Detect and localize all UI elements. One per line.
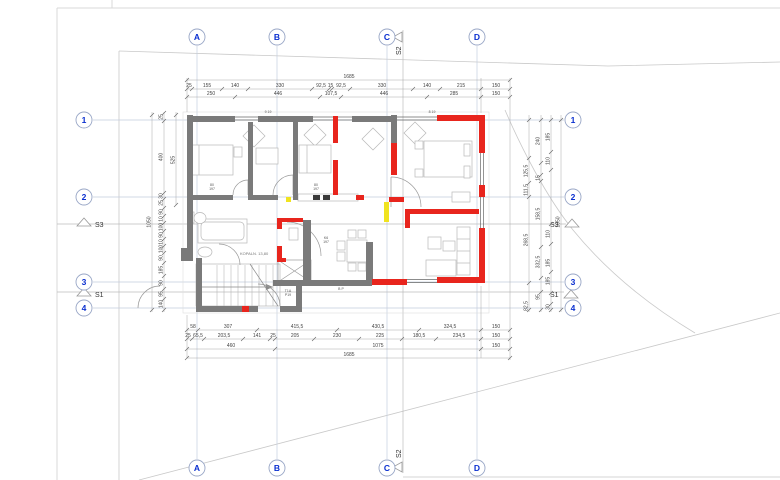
svg-text:240: 240: [536, 137, 542, 146]
svg-text:D: D: [474, 463, 480, 473]
svg-text:3: 3: [82, 277, 87, 287]
door-gate: [138, 286, 160, 308]
door-master: [391, 177, 421, 207]
axis-bubble-B-top: B: [269, 29, 285, 45]
svg-text:332,5: 332,5: [536, 256, 542, 269]
svg-text:25: 25: [159, 200, 165, 206]
svg-text:A: A: [194, 463, 200, 473]
svg-text:B P: B P: [338, 287, 344, 291]
svg-text:111,5: 111,5: [524, 184, 530, 196]
svg-text:4: 4: [82, 303, 87, 313]
svg-text:58: 58: [190, 324, 196, 330]
svg-text:415,5: 415,5: [291, 324, 304, 330]
floor-plan-page: S3 S3 S1 S1 S2 S2: [0, 0, 780, 480]
axis-bubble-B-bottom: B: [269, 460, 285, 476]
svg-text:155: 155: [203, 83, 212, 89]
svg-text:10: 10: [159, 216, 165, 222]
svg-text:15: 15: [536, 175, 542, 181]
section-s2-bottom-label: S2: [396, 449, 403, 458]
svg-text:446: 446: [380, 91, 389, 97]
svg-text:158,5: 158,5: [536, 208, 542, 221]
svg-text:250: 250: [207, 91, 216, 97]
svg-text:P19: P19: [285, 293, 291, 297]
svg-text:330: 330: [276, 83, 285, 89]
svg-text:2: 2: [82, 192, 87, 202]
nightstand: [415, 169, 423, 177]
sink: [323, 195, 330, 200]
svg-text:460: 460: [227, 343, 236, 349]
pillow-diamond: [362, 128, 384, 150]
section-s2-top-label: S2: [396, 46, 403, 55]
svg-text:185: 185: [159, 266, 165, 275]
svg-text:90: 90: [159, 280, 165, 286]
svg-text:4: 4: [571, 303, 576, 313]
svg-text:65,5: 65,5: [193, 333, 203, 339]
svg-text:2: 2: [571, 192, 576, 202]
dining-table: [347, 240, 367, 262]
axis-bubble-A-top: A: [189, 29, 205, 45]
svg-text:25: 25: [185, 333, 191, 339]
svg-text:1685: 1685: [343, 74, 354, 80]
svg-text:268,5: 268,5: [524, 234, 530, 247]
svg-text:25: 25: [270, 333, 276, 339]
svg-text:90: 90: [159, 255, 165, 261]
section-s3-left-label: S3: [95, 222, 104, 229]
section-s3-left-arrow: [77, 218, 91, 226]
svg-text:430,5: 430,5: [372, 324, 385, 330]
axis-bubble-A-bottom: A: [189, 460, 205, 476]
axis-bubble-2-left: 2: [76, 189, 92, 205]
axis-bubble-4-right: 4: [565, 300, 581, 316]
cooktop: [313, 195, 320, 200]
sofa: [426, 260, 456, 276]
frame-lines: [57, 0, 780, 480]
svg-text:150: 150: [492, 333, 501, 339]
svg-text:1075: 1075: [372, 343, 383, 349]
svg-text:324,5: 324,5: [444, 324, 457, 330]
chair: [348, 230, 356, 238]
doors: [138, 175, 421, 308]
svg-text:185: 185: [546, 259, 552, 268]
axis-bubble-1-right: 1: [565, 112, 581, 128]
svg-text:10: 10: [159, 239, 165, 245]
svg-text:A: A: [194, 32, 200, 42]
walls-existing: [181, 115, 397, 312]
pillow-diamond: [243, 125, 265, 147]
svg-text:D: D: [474, 32, 480, 42]
axis-bubble-1-left: 1: [76, 112, 92, 128]
wc-fixture: [289, 228, 298, 240]
svg-text:9 19: 9 19: [265, 110, 272, 114]
svg-text:30: 30: [159, 193, 165, 199]
svg-text:185: 185: [546, 277, 552, 286]
svg-text:100: 100: [159, 223, 165, 232]
svg-text:110: 110: [546, 230, 552, 238]
svg-text:1050: 1050: [147, 216, 153, 227]
svg-text:140: 140: [231, 83, 240, 89]
axis-bubble-3-right: 3: [565, 274, 581, 290]
svg-text:1: 1: [571, 115, 576, 125]
door-room2: [273, 175, 293, 195]
coffee-table: [443, 241, 455, 251]
svg-text:3: 3: [571, 277, 576, 287]
micro-labels: 9 198 198019780197K6197T1AP19B P: [209, 110, 435, 297]
nightstand: [415, 141, 423, 149]
room-label: KOPALN. 13,80: [240, 251, 269, 256]
svg-text:1050: 1050: [556, 216, 562, 227]
svg-text:203,5: 203,5: [218, 333, 231, 339]
section-s1-left-label: S1: [95, 292, 104, 299]
svg-text:150: 150: [492, 343, 501, 349]
svg-text:197: 197: [323, 240, 329, 244]
bed-room1: [191, 145, 233, 175]
svg-text:285: 285: [450, 91, 459, 97]
svg-text:25: 25: [159, 114, 165, 120]
section-s1-right-arrow: [564, 290, 578, 298]
svg-text:90: 90: [159, 209, 165, 215]
svg-text:25: 25: [186, 83, 192, 89]
svg-text:525: 525: [171, 156, 177, 165]
chair: [337, 252, 345, 261]
svg-text:230: 230: [333, 333, 342, 339]
svg-text:150: 150: [492, 91, 501, 97]
svg-text:234,5: 234,5: [453, 333, 466, 339]
axis-bubble-3-left: 3: [76, 274, 92, 290]
chair: [358, 263, 366, 271]
chair: [358, 230, 366, 238]
svg-text:150: 150: [492, 83, 501, 89]
svg-text:185: 185: [546, 133, 552, 142]
nightstand: [234, 147, 242, 157]
axis-bubble-C-bottom: C: [379, 460, 395, 476]
svg-text:1685: 1685: [343, 352, 354, 358]
svg-text:180,5: 180,5: [413, 333, 426, 339]
svg-text:92,5: 92,5: [336, 83, 346, 89]
svg-text:215: 215: [457, 83, 466, 89]
svg-text:95: 95: [159, 291, 165, 297]
svg-text:92,5: 92,5: [316, 83, 326, 89]
armchair: [428, 237, 441, 249]
svg-text:90: 90: [159, 232, 165, 238]
svg-text:95: 95: [536, 294, 542, 300]
desk-room2: [256, 148, 278, 164]
axis-bubble-4-left: 4: [76, 300, 92, 316]
chair: [337, 241, 345, 250]
svg-text:30: 30: [546, 304, 552, 310]
chair: [348, 263, 356, 271]
svg-text:B: B: [274, 32, 280, 42]
floor-plan-canvas: S3 S3 S1 S1 S2 S2: [0, 0, 780, 480]
svg-text:150: 150: [492, 324, 501, 330]
svg-text:140: 140: [423, 83, 432, 89]
washbasin: [198, 247, 212, 257]
svg-text:100: 100: [159, 245, 165, 254]
svg-text:C: C: [384, 32, 390, 42]
svg-text:1: 1: [82, 115, 87, 125]
svg-text:400: 400: [159, 153, 165, 162]
svg-text:B: B: [274, 463, 280, 473]
svg-text:125,5: 125,5: [524, 165, 530, 178]
svg-text:141: 141: [253, 333, 262, 339]
bed-room2: [299, 145, 331, 173]
svg-text:82,5: 82,5: [524, 301, 530, 311]
toilet-bowl: [194, 213, 206, 224]
svg-text:110: 110: [546, 157, 552, 165]
door-room1: [233, 180, 248, 195]
svg-text:205: 205: [291, 333, 300, 339]
svg-text:107,5: 107,5: [325, 91, 338, 97]
svg-text:140: 140: [159, 300, 165, 309]
axis-bubble-2-right: 2: [565, 189, 581, 205]
svg-text:197: 197: [209, 187, 215, 191]
axis-bubble-D-bottom: D: [469, 460, 485, 476]
svg-text:330: 330: [378, 83, 387, 89]
axis-bubble-C-top: C: [379, 29, 395, 45]
svg-text:307: 307: [224, 324, 233, 330]
axis-bubble-D-top: D: [469, 29, 485, 45]
dresser-master: [452, 192, 470, 202]
svg-text:8 19: 8 19: [429, 110, 436, 114]
svg-text:225: 225: [376, 333, 385, 339]
svg-text:15: 15: [328, 83, 334, 89]
section-lines: S3 S3 S1 S1 S2 S2: [57, 30, 579, 473]
bathtub: [198, 219, 247, 243]
door-bathroom: [219, 244, 240, 265]
svg-text:446: 446: [274, 91, 283, 97]
svg-text:197: 197: [313, 187, 319, 191]
svg-text:C: C: [384, 463, 390, 473]
pillow-diamond: [304, 124, 326, 146]
